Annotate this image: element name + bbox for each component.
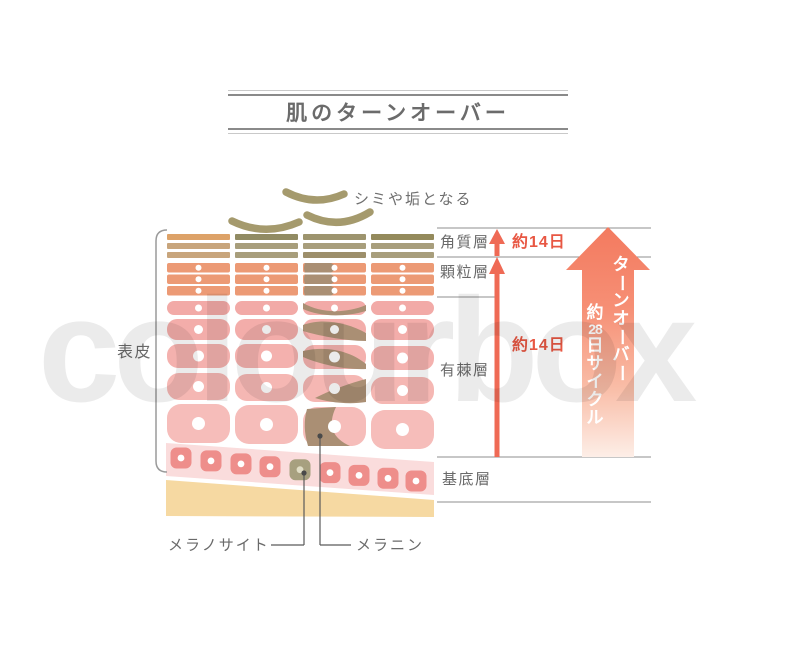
corneum-duration-label: 約14日 bbox=[512, 235, 566, 251]
cell-nucleus bbox=[196, 265, 202, 271]
cell-nucleus bbox=[397, 353, 408, 364]
corneum-bar bbox=[235, 243, 298, 249]
cell-nucleus bbox=[238, 461, 245, 468]
cell-nucleus bbox=[267, 463, 274, 470]
cell-nucleus bbox=[264, 265, 270, 271]
spinous-layer-cells bbox=[167, 301, 434, 449]
cell-nucleus bbox=[396, 423, 409, 436]
melanin-label: メラニン bbox=[356, 538, 424, 553]
corneum-bar bbox=[167, 234, 230, 240]
cell-nucleus bbox=[329, 352, 340, 363]
turnover-arrow-text: ターンオーバー bbox=[610, 256, 632, 382]
cell-nucleus bbox=[400, 276, 406, 282]
melanin-in-granular bbox=[304, 286, 336, 296]
skin-turnover-infographic: 肌のターンオーバー シミや垢となる 表皮 角質層 顆粒層 有棘層 基底層 メラノ… bbox=[0, 0, 800, 670]
cell-nucleus bbox=[260, 418, 273, 431]
duration-arrow-short bbox=[489, 229, 505, 256]
epidermis-label: 表皮 bbox=[117, 345, 152, 361]
cell-nucleus bbox=[332, 288, 338, 294]
spinous-layer-label: 有棘層 bbox=[440, 363, 490, 378]
cell-nucleus bbox=[195, 305, 202, 312]
stratum-corneum-label: 角質層 bbox=[440, 235, 490, 250]
melanin-in-granular bbox=[304, 275, 336, 285]
corneum-bar bbox=[371, 243, 434, 249]
cell-nucleus bbox=[192, 417, 205, 430]
corneum-bar bbox=[167, 243, 230, 249]
cell-nucleus bbox=[193, 351, 204, 362]
cell-nucleus bbox=[331, 305, 338, 312]
cell-nucleus bbox=[262, 325, 271, 334]
cell-nucleus bbox=[196, 288, 202, 294]
cell-nucleus bbox=[208, 458, 215, 465]
melanin-in-granular bbox=[304, 263, 336, 273]
duration-arrow-long bbox=[489, 257, 505, 457]
cell-nucleus bbox=[263, 305, 270, 312]
corneum-bar bbox=[371, 252, 434, 258]
cell-nucleus bbox=[332, 276, 338, 282]
skin-flakes bbox=[232, 192, 370, 229]
cell-nucleus bbox=[397, 385, 408, 396]
cell-nucleus bbox=[329, 383, 340, 394]
cell-nucleus bbox=[399, 305, 406, 312]
corneum-bar bbox=[167, 252, 230, 258]
corneum-bar bbox=[303, 252, 366, 258]
cell-nucleus bbox=[261, 382, 272, 393]
cell-nucleus bbox=[264, 276, 270, 282]
cell-nucleus bbox=[413, 478, 420, 485]
corneum-bar bbox=[235, 234, 298, 240]
cell-nucleus bbox=[264, 288, 270, 294]
corneum-bar bbox=[371, 234, 434, 240]
cell-nucleus bbox=[332, 265, 338, 271]
cell-nucleus bbox=[330, 325, 339, 334]
epidermis-duration-label: 約14日 bbox=[512, 338, 566, 354]
cell-nucleus bbox=[400, 288, 406, 294]
cell-nucleus bbox=[196, 276, 202, 282]
turnover-cycle-text: 約28日サイクル bbox=[584, 304, 606, 427]
cell-nucleus bbox=[178, 455, 185, 462]
cell-nucleus bbox=[261, 351, 272, 362]
basal-layer-label: 基底層 bbox=[442, 472, 492, 487]
granular-layer-label: 顆粒層 bbox=[440, 265, 490, 280]
cell-nucleus bbox=[328, 420, 341, 433]
cell-nucleus bbox=[193, 381, 204, 392]
granular-layer-bars bbox=[167, 263, 434, 296]
cell-nucleus bbox=[400, 265, 406, 271]
skin-diagram bbox=[0, 0, 800, 670]
cell-nucleus bbox=[194, 325, 203, 334]
cell-nucleus bbox=[385, 475, 392, 482]
corneum-bar bbox=[303, 243, 366, 249]
cell-nucleus bbox=[356, 472, 363, 479]
cell-nucleus bbox=[398, 325, 407, 334]
melanocyte-label: メラノサイト bbox=[168, 538, 270, 553]
flake-note-label: シミや垢となる bbox=[354, 192, 473, 207]
turnover-arrow bbox=[566, 227, 650, 457]
corneum-layer-bars bbox=[167, 234, 434, 258]
epidermis-bracket bbox=[156, 230, 167, 472]
corneum-bar bbox=[303, 234, 366, 240]
corneum-bar bbox=[235, 252, 298, 258]
cell-nucleus bbox=[327, 469, 334, 476]
